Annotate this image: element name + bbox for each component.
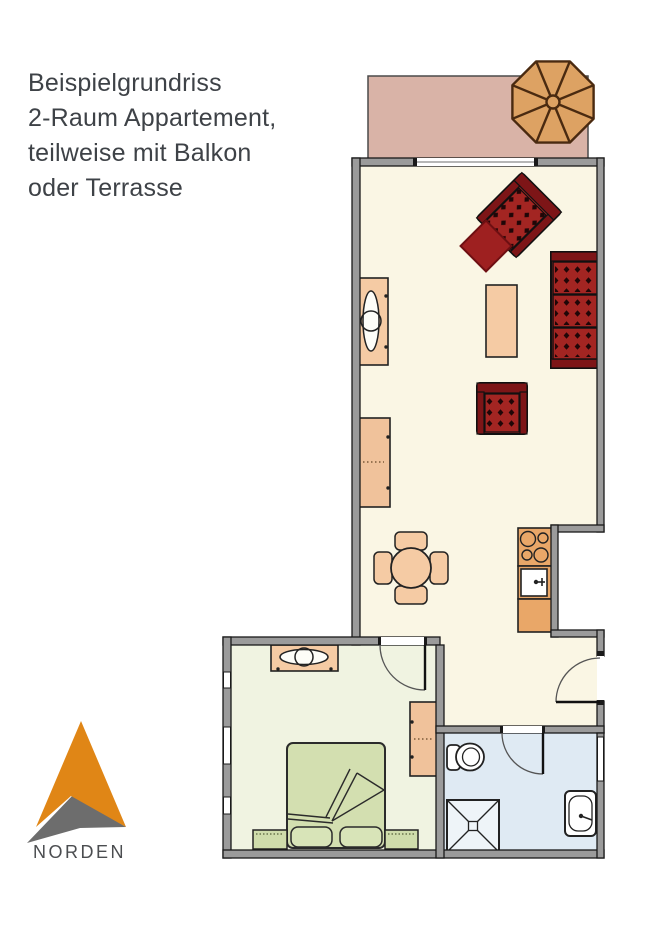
exterior-notch xyxy=(558,532,604,630)
pillow xyxy=(291,827,332,847)
kitchen-counter xyxy=(518,599,552,632)
toilet-icon xyxy=(447,744,484,771)
sofa-icon xyxy=(551,252,599,368)
armchair-icon xyxy=(477,383,527,434)
tv-sideboard-bedroom xyxy=(271,645,338,671)
floorplan-drawing xyxy=(0,0,658,940)
floorplan-page: Beispielgrundriss 2-Raum Appartement, te… xyxy=(0,0,658,940)
bedside-bench xyxy=(385,830,418,849)
north-label: NORDEN xyxy=(33,842,126,863)
bedside-bench xyxy=(253,830,287,849)
north-arrow-icon xyxy=(27,721,126,843)
shower-icon xyxy=(447,800,499,852)
coffee-table xyxy=(486,285,517,357)
window-bathroom xyxy=(598,737,604,781)
kitchenette xyxy=(518,528,552,632)
double-bed-icon xyxy=(287,743,385,848)
sideboard xyxy=(358,418,390,507)
pillow xyxy=(340,827,382,847)
window-balcony xyxy=(413,158,538,166)
parasol-icon xyxy=(512,61,593,142)
washbasin-icon xyxy=(565,791,596,836)
wardrobe xyxy=(410,702,437,776)
tv-sideboard xyxy=(358,278,388,365)
